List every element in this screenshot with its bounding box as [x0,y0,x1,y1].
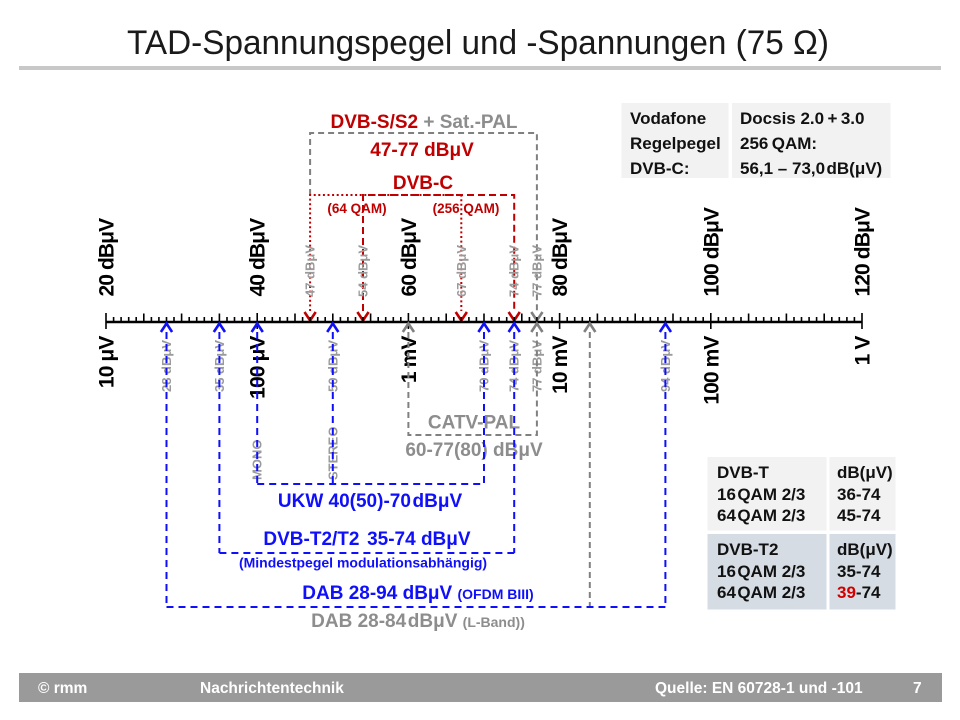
svg-text:35-74: 35-74 [837,562,881,581]
svg-text:DVB-T2: DVB-T2 [717,540,778,559]
svg-text:20 dBμV: 20 dBμV [96,218,119,297]
svg-text:dB(μV): dB(μV) [837,463,893,482]
svg-text:39-74: 39-74 [837,583,881,602]
svg-text:100 mV: 100 mV [700,336,723,405]
svg-text:77 dBμV: 77 dBμV [529,245,544,297]
svg-text:(64 QAM): (64 QAM) [327,201,386,216]
svg-text:Docsis 2.0 + 3.0: Docsis 2.0 + 3.0 [740,109,864,128]
svg-text:UKW 40(50)-70 dBμV: UKW 40(50)-70 dBμV [278,491,463,512]
svg-text:74 dBμV: 74 dBμV [507,245,522,297]
svg-text:DVB-S/S2 + Sat.-PAL: DVB-S/S2 + Sat.-PAL [330,112,517,133]
svg-text:TAD-Spannungspegel und -Spannu: TAD-Spannungspegel und -Spannungen (75 Ω… [127,24,829,62]
svg-text:(Mindestpegel modulationsabhän: (Mindestpegel modulationsabhängig) [239,555,487,571]
svg-text:80 dBμV: 80 dBμV [549,218,572,297]
svg-text:10 mV: 10 mV [549,336,572,394]
svg-text:54 dBμV: 54 dBμV [356,245,371,297]
svg-text:Vodafone: Vodafone [630,109,706,128]
svg-text:DVB-C: DVB-C [393,173,453,194]
svg-text:CATV-PAL: CATV-PAL [428,413,521,434]
svg-text:DVB-C:: DVB-C: [630,159,690,178]
svg-text:47 dBμV: 47 dBμV [303,245,318,297]
svg-text:120 dBμV: 120 dBμV [852,207,875,296]
svg-text:40 dBμV: 40 dBμV [247,218,270,297]
svg-text:45-74: 45-74 [837,506,881,525]
svg-text:67 dBμV: 67 dBμV [454,245,469,297]
svg-text:Regelpegel: Regelpegel [630,134,721,153]
svg-text:56,1 – 73,0 dB(μV): 56,1 – 73,0 dB(μV) [740,159,882,178]
svg-text:256 QAM:: 256 QAM: [740,134,817,153]
svg-text:DVB-T: DVB-T [717,463,770,482]
svg-text:7: 7 [913,680,922,697]
svg-text:16 QAM 2/3: 16 QAM 2/3 [717,485,805,504]
svg-text:100 dBμV: 100 dBμV [700,207,723,296]
svg-text:Quelle: EN 60728-1 und -101: Quelle: EN 60728-1 und -101 [655,680,863,697]
svg-text:60-77(80) dBμV: 60-77(80) dBμV [405,440,543,461]
svg-text:47-77 dBμV: 47-77 dBμV [370,140,474,161]
svg-text:dB(μV): dB(μV) [837,540,893,559]
svg-text:16 QAM 2/3: 16 QAM 2/3 [717,562,805,581]
svg-text:64 QAM 2/3: 64 QAM 2/3 [717,583,805,602]
svg-text:(256 QAM): (256 QAM) [433,201,500,216]
svg-text:DAB 28-84 dBμV (L-Band)): DAB 28-84 dBμV (L-Band)) [311,611,525,632]
svg-text:10 μV: 10 μV [96,336,119,388]
svg-text:60 dBμV: 60 dBμV [398,218,421,297]
svg-text:36-74: 36-74 [837,485,881,504]
svg-text:© rmm: © rmm [38,680,87,697]
svg-text:DAB 28-94 dBμV (OFDM BIII): DAB 28-94 dBμV (OFDM BIII) [302,583,533,604]
svg-text:Nachrichtentechnik: Nachrichtentechnik [200,680,344,697]
svg-text:1 V: 1 V [852,336,875,366]
svg-text:DVB-T2/T2 35-74 dBμV: DVB-T2/T2 35-74 dBμV [263,529,470,550]
svg-text:64 QAM 2/3: 64 QAM 2/3 [717,506,805,525]
